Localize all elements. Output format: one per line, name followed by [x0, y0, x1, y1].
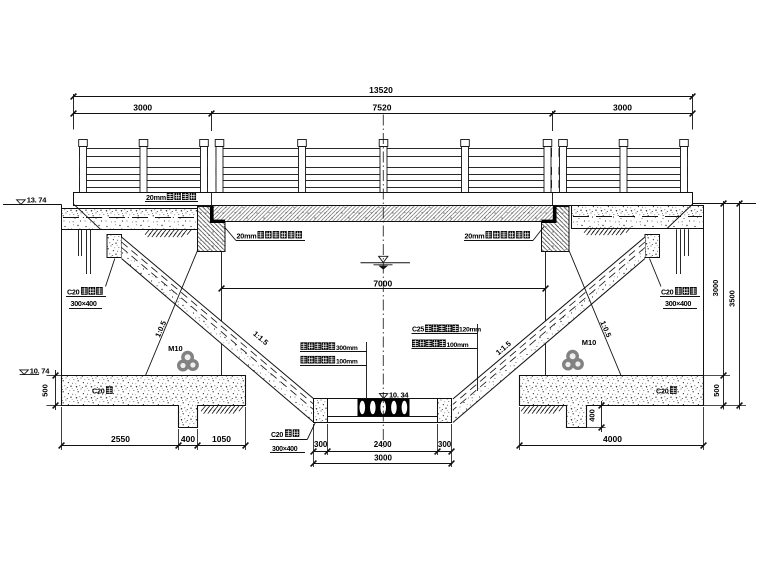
svg-text:300: 300 — [438, 440, 452, 449]
svg-text:2400: 2400 — [374, 440, 392, 449]
svg-text:3000: 3000 — [711, 280, 720, 297]
svg-text:500: 500 — [712, 384, 721, 397]
svg-text:3000: 3000 — [374, 454, 392, 463]
svg-text:7000: 7000 — [373, 278, 392, 288]
svg-text:3500: 3500 — [728, 290, 737, 307]
svg-text:1:1.5: 1:1.5 — [251, 329, 270, 347]
svg-text:300×400: 300×400 — [665, 299, 691, 308]
svg-text:20mm: 20mm — [146, 193, 166, 202]
svg-text:13. 74: 13. 74 — [27, 196, 47, 205]
svg-text:C20: C20 — [656, 387, 669, 396]
svg-text:300×400: 300×400 — [71, 299, 97, 308]
svg-text:C20: C20 — [661, 287, 674, 296]
svg-text:1050: 1050 — [212, 434, 231, 444]
svg-text:1:0.5: 1:0.5 — [598, 319, 613, 338]
svg-text:C20: C20 — [67, 287, 80, 296]
svg-text:M10: M10 — [168, 344, 183, 353]
svg-text:C25: C25 — [412, 327, 424, 334]
svg-text:7520: 7520 — [373, 103, 392, 113]
svg-text:3000: 3000 — [613, 103, 632, 113]
svg-text:400: 400 — [181, 434, 195, 444]
svg-text:500: 500 — [41, 384, 50, 397]
svg-text:1:0.5: 1:0.5 — [153, 319, 168, 338]
svg-text:300×400: 300×400 — [272, 446, 298, 453]
svg-text:20mm: 20mm — [237, 231, 257, 240]
svg-text:M10: M10 — [582, 338, 597, 347]
svg-text:10. 74: 10. 74 — [30, 366, 50, 375]
svg-text:4000: 4000 — [603, 434, 622, 444]
svg-text:13520: 13520 — [369, 85, 393, 95]
svg-text:3000: 3000 — [133, 103, 152, 113]
svg-text:C20: C20 — [92, 387, 105, 396]
svg-text:300: 300 — [314, 440, 328, 449]
svg-text:300mm: 300mm — [336, 345, 358, 352]
svg-text:2550: 2550 — [111, 434, 130, 444]
svg-text:C20: C20 — [271, 432, 283, 439]
svg-text:10. 34: 10. 34 — [389, 390, 409, 399]
svg-text:400: 400 — [588, 409, 597, 422]
svg-text:100mm: 100mm — [447, 342, 469, 349]
svg-text:20mm: 20mm — [465, 231, 485, 240]
svg-text:100mm: 100mm — [336, 359, 358, 366]
